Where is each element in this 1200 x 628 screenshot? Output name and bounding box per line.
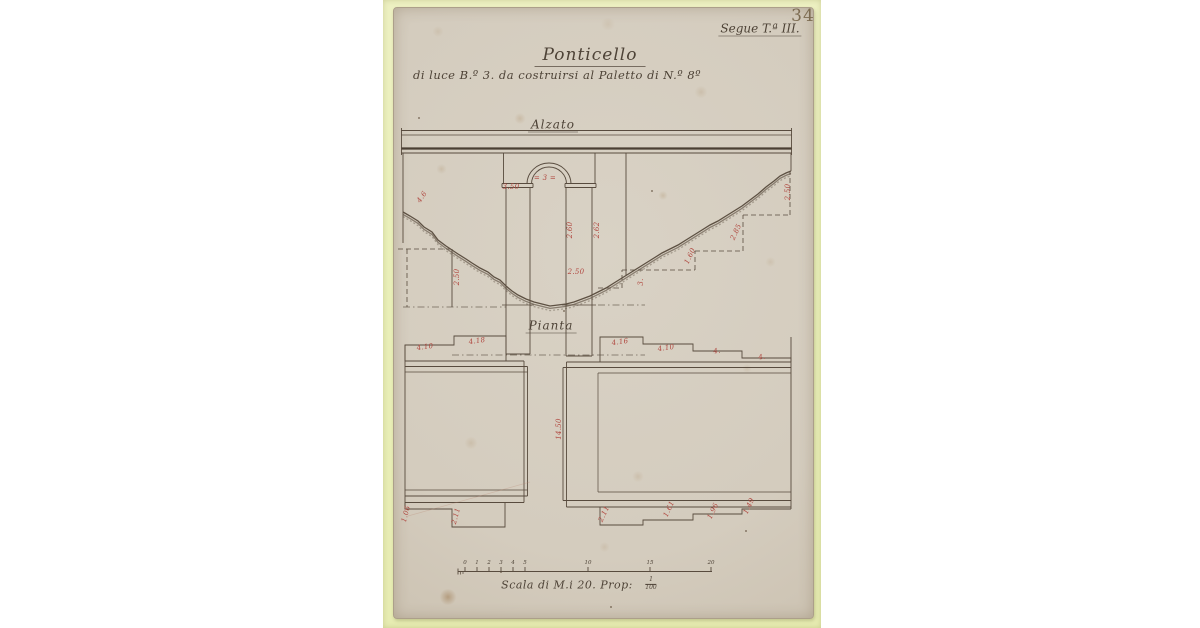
dimension-label: 3.50 [503, 183, 520, 191]
scale-tick-label: 10 [585, 560, 592, 566]
scale-tick-label: 1 [475, 560, 479, 566]
elevation-label: Alzato [528, 118, 578, 133]
dimension-label: 2.62 [593, 222, 601, 239]
dimension-label: 4. [758, 353, 766, 362]
plan-right-abutment [563, 337, 791, 525]
technical-drawing [0, 0, 1200, 628]
elevation-deck [401, 128, 792, 155]
scale-tick-label: 0 [463, 560, 467, 566]
dimension-label: 3. [637, 278, 645, 285]
dimension-label: 2.60 [566, 222, 574, 239]
drawing-subtitle: di luce B.º 3. da costruirsi al Paletto … [413, 68, 701, 82]
drawing-title: Ponticello [535, 45, 646, 67]
screenshot-root: 34 Segue T.ª III. Ponticello di luce B.º… [0, 0, 1200, 628]
elevation-foundation-dashed [398, 172, 790, 355]
scale-tick-label: 4 [511, 560, 515, 566]
dimension-label: 4. [713, 347, 721, 356]
scale-tick-label: 2 [487, 560, 491, 566]
series-note: Segue T.ª III. [718, 22, 801, 37]
scale-fraction-denominator: 100 [645, 584, 656, 591]
dimension-label: 14.50 [555, 418, 563, 440]
dimension-label: 2.50 [784, 184, 792, 201]
scale-caption: Scala di M.i 20. Prop: [501, 579, 633, 592]
scale-fraction: 1 100 [645, 577, 656, 591]
scale-tick-label: 15 [647, 560, 654, 566]
dimension-label: 2.50 [453, 269, 461, 286]
scale-bar [458, 567, 712, 575]
plan-left-abutment [405, 336, 530, 527]
scale-tick-label: 20 [708, 560, 715, 566]
elevation-ground-line [403, 171, 791, 311]
dimension-label: = 3 = [534, 174, 556, 182]
plan-label: Pianta [526, 319, 577, 334]
scale-tick-label: 3 [499, 560, 503, 566]
scale-tick-label: 5 [523, 560, 527, 566]
dimension-label: 2.50 [568, 268, 585, 276]
